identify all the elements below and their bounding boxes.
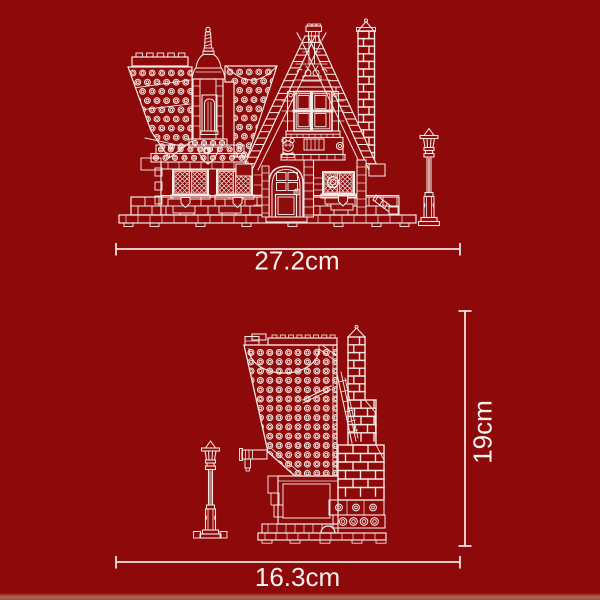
svg-text:27.2cm: 27.2cm <box>254 246 339 276</box>
svg-text:16.3cm: 16.3cm <box>255 562 340 592</box>
svg-text:19cm: 19cm <box>468 400 498 464</box>
